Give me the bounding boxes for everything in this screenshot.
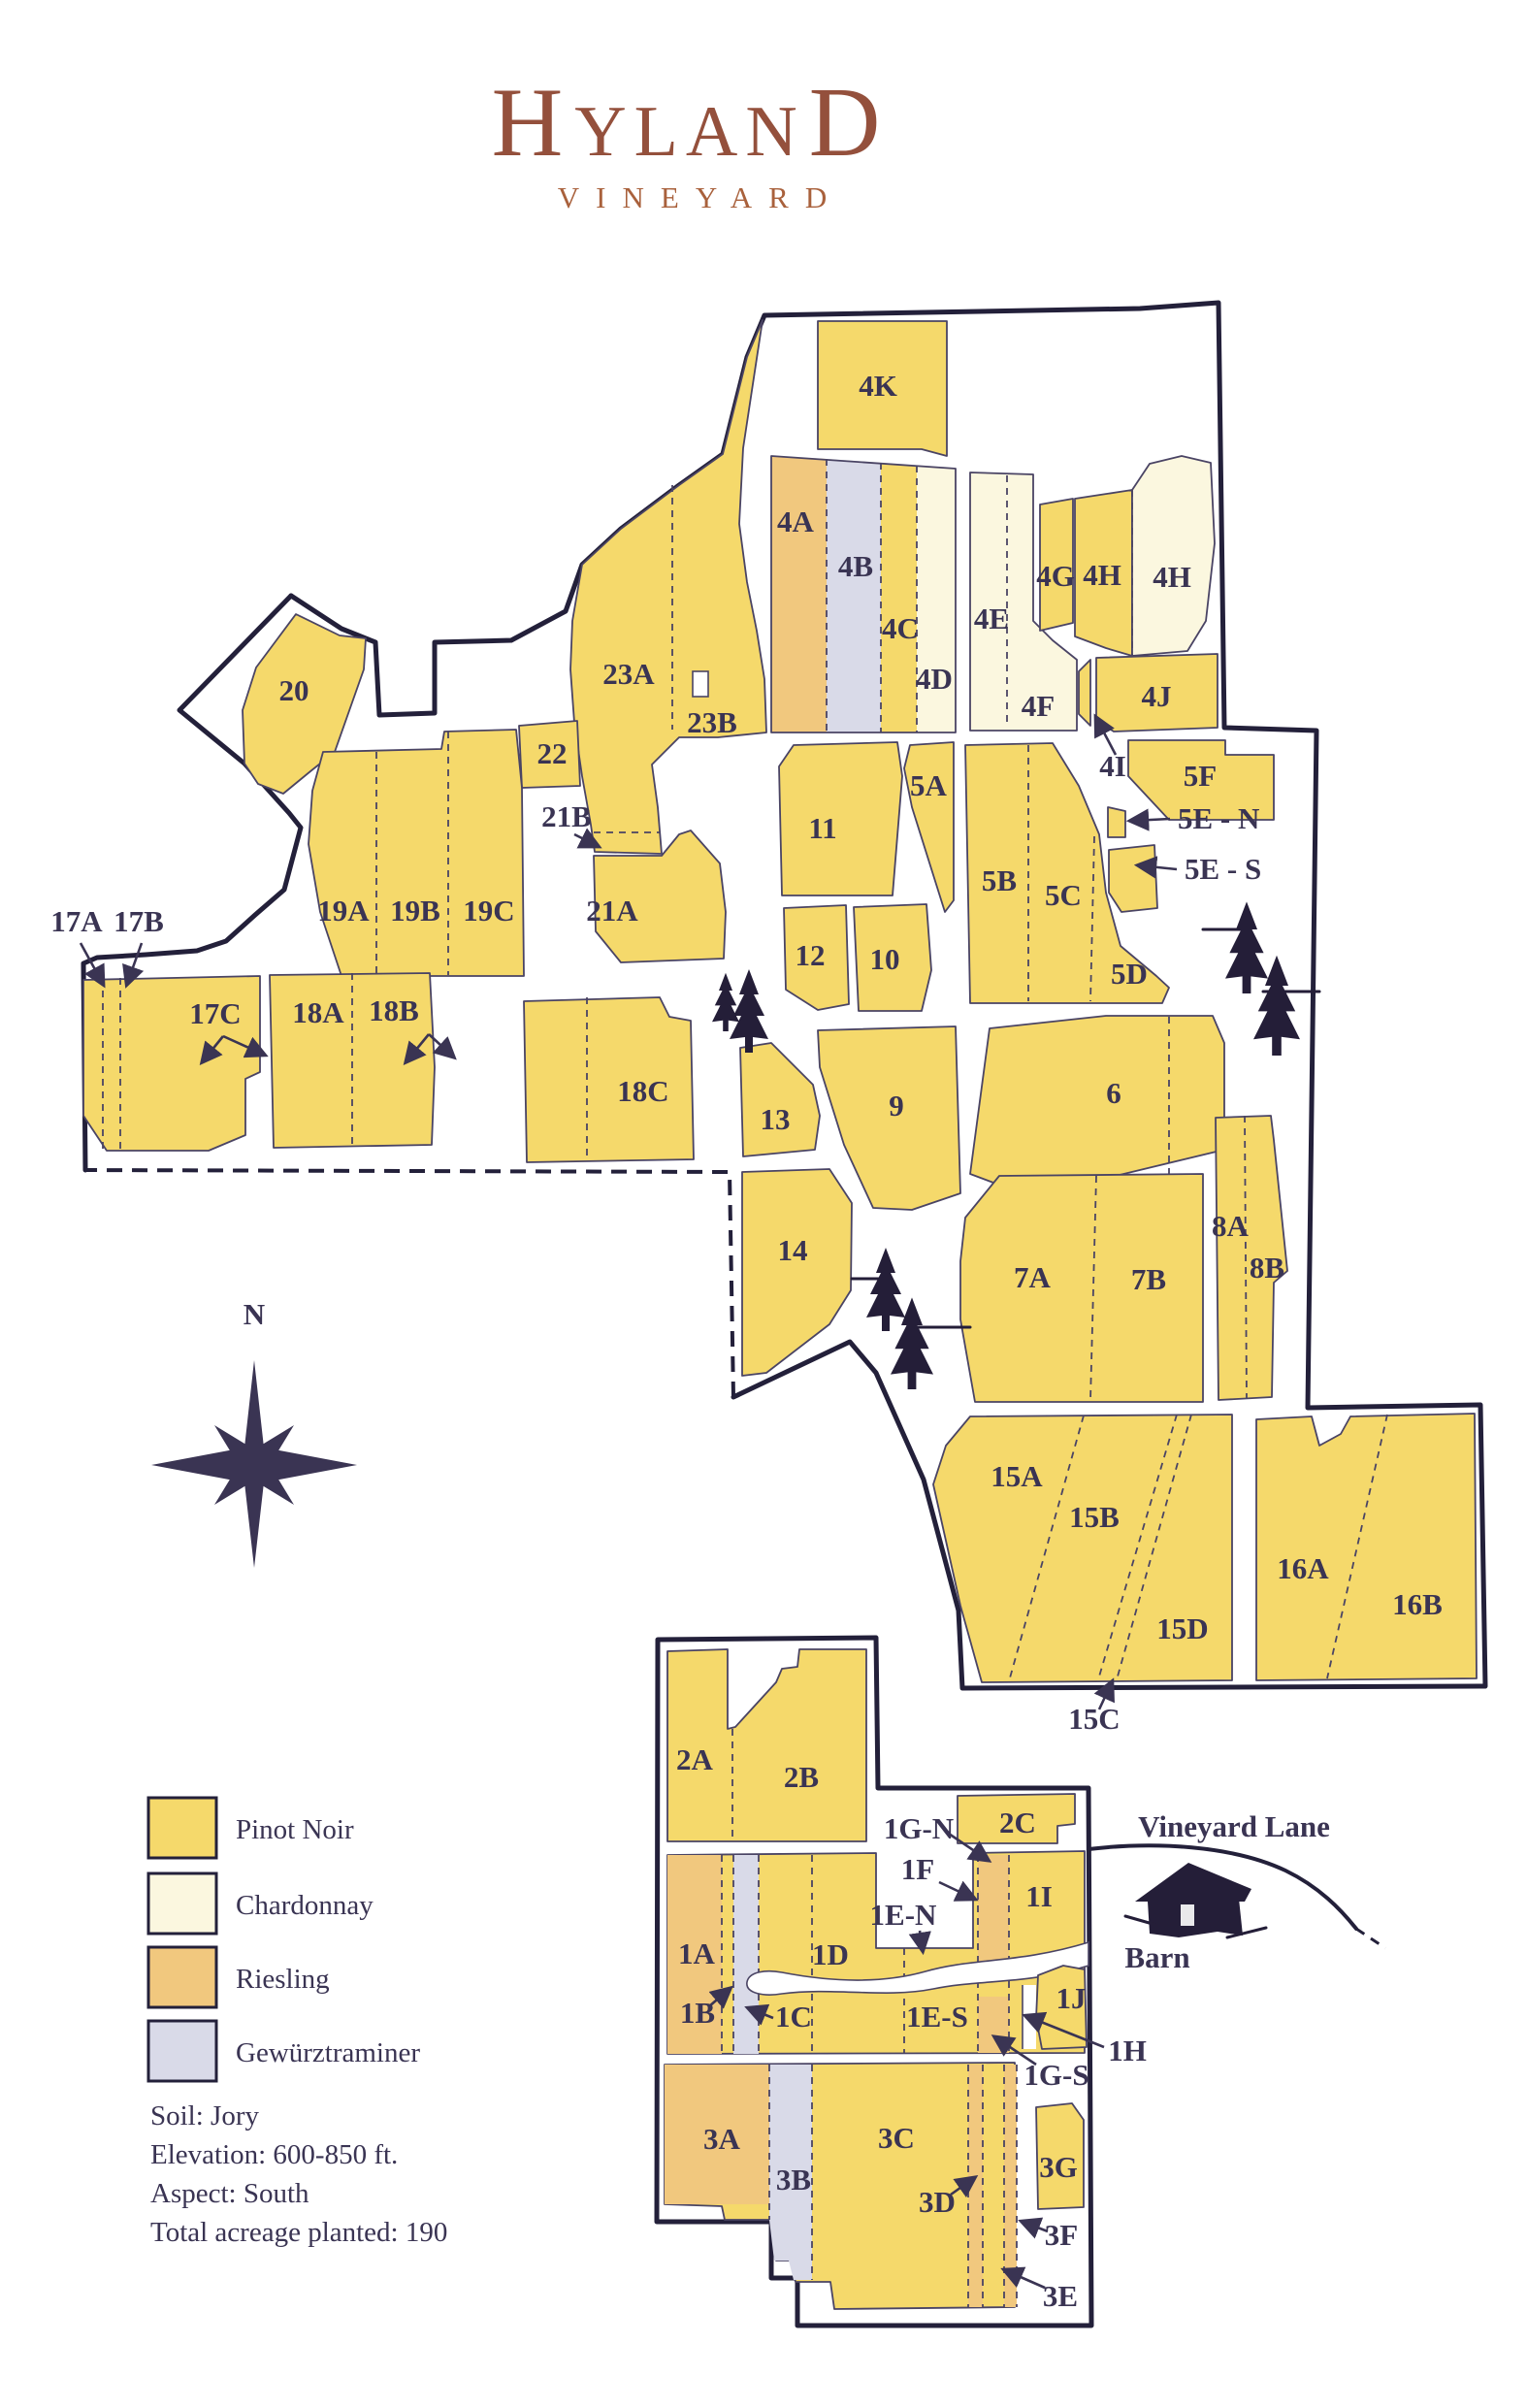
block-label-4H-east: 4H xyxy=(1153,560,1191,594)
tree-icon xyxy=(866,1248,905,1331)
block-label-7B: 7B xyxy=(1131,1262,1166,1296)
block-label-5D: 5D xyxy=(1111,957,1148,991)
block-1C xyxy=(733,1855,759,2054)
block-label-3E: 3E xyxy=(1043,2279,1078,2313)
block-label-4H-west: 4H xyxy=(1083,558,1121,592)
block-label-1J: 1J xyxy=(1056,1981,1087,2015)
block-label-5F: 5F xyxy=(1184,759,1217,793)
block-label-16A: 16A xyxy=(1277,1551,1329,1585)
info-acreage: Total acreage planted: 190 xyxy=(150,2217,447,2248)
block-label-1F: 1F xyxy=(901,1852,934,1886)
block-label-23B: 23B xyxy=(687,705,737,739)
block-label-1I: 1I xyxy=(1025,1879,1053,1913)
block-label-4G: 4G xyxy=(1036,559,1075,593)
block-label-5B: 5B xyxy=(982,863,1017,897)
block-label-4J: 4J xyxy=(1142,679,1172,713)
legend-label-gewurztraminer: Gewürztraminer xyxy=(236,2037,420,2068)
block-13 xyxy=(740,1043,820,1156)
block-label-13: 13 xyxy=(761,1102,791,1136)
block-label-1E-N: 1E-N xyxy=(870,1898,937,1932)
tree-icon xyxy=(730,969,768,1053)
block-label-5E-N: 5E - N xyxy=(1178,801,1259,835)
block-5E-N xyxy=(1108,807,1125,837)
block-4C xyxy=(881,463,917,732)
landmarks xyxy=(1088,1845,1385,1948)
block-3D-strip xyxy=(968,2065,983,2307)
block-label-1E-S: 1E-S xyxy=(906,2000,968,2034)
block-label-11: 11 xyxy=(808,811,836,845)
block-1F-1G-N-strip xyxy=(978,1855,1009,1969)
legend-swatch-chardonnay xyxy=(148,1873,216,1934)
block-label-18B: 18B xyxy=(369,993,419,1027)
block-label-17B: 17B xyxy=(114,904,164,938)
compass-rose-icon xyxy=(151,1360,357,1568)
block-label-8B: 8B xyxy=(1250,1251,1284,1285)
block-label-15A: 15A xyxy=(991,1459,1043,1493)
block-14 xyxy=(742,1169,852,1376)
tree-icon xyxy=(1225,901,1268,993)
legend: Pinot Noir Chardonnay Riesling Gewürztra… xyxy=(148,1798,420,2081)
block-label-16B: 16B xyxy=(1392,1587,1443,1621)
vineyard-info: Soil: Jory Elevation: 600-850 ft. Aspect… xyxy=(150,2100,447,2248)
vineyard-lane-label: Vineyard Lane xyxy=(1138,1809,1330,1843)
page-title: HYLAND xyxy=(492,68,889,178)
block-label-19C: 19C xyxy=(463,894,514,927)
vineyard-blocks-west xyxy=(83,320,766,1162)
barn-icon xyxy=(1125,1863,1266,1937)
block-label-1B: 1B xyxy=(680,1996,715,2030)
block-label-3B: 3B xyxy=(776,2163,811,2196)
legend-label-pinot: Pinot Noir xyxy=(236,1814,354,1845)
vineyard-map: HYLAND VINEYARD xyxy=(0,0,1527,2408)
block-label-21B: 21B xyxy=(541,799,592,833)
block-4A xyxy=(771,456,827,732)
block-label-1G-N: 1G-N xyxy=(884,1811,954,1845)
block-6 xyxy=(970,1016,1224,1188)
block-label-4A: 4A xyxy=(777,504,815,538)
block-label-2B: 2B xyxy=(784,1760,819,1794)
block-label-10: 10 xyxy=(870,942,900,976)
barn-label: Barn xyxy=(1124,1940,1189,1974)
compass-north-label: N xyxy=(244,1297,265,1331)
block-label-1D: 1D xyxy=(812,1937,849,1971)
block-label-7A: 7A xyxy=(1014,1260,1052,1294)
block-label-3G: 3G xyxy=(1039,2150,1078,2184)
block-label-1A: 1A xyxy=(678,1936,716,1970)
legend-swatch-riesling xyxy=(148,1947,216,2007)
block-label-5A: 5A xyxy=(910,768,948,802)
block-label-1G-S: 1G-S xyxy=(1023,2058,1088,2092)
block-label-19A: 19A xyxy=(317,894,370,927)
block-4B xyxy=(827,459,881,732)
block-label-3F: 3F xyxy=(1045,2218,1078,2252)
block-7A-7B xyxy=(960,1174,1203,1402)
block-label-4K: 4K xyxy=(859,369,897,403)
block-4H-east xyxy=(1132,456,1215,656)
block-label-17C: 17C xyxy=(189,996,241,1030)
block-11 xyxy=(779,742,902,895)
vineyard-map-page: { "title": {"first": "H", "middle": "YLA… xyxy=(0,0,1527,2408)
legend-label-chardonnay: Chardonnay xyxy=(236,1890,374,1921)
block-label-4F: 4F xyxy=(1022,689,1055,723)
block-label-9: 9 xyxy=(889,1089,904,1123)
block-label-1C: 1C xyxy=(775,2000,812,2034)
block-label-3A: 3A xyxy=(703,2122,741,2156)
page-subtitle: VINEYARD xyxy=(558,180,843,214)
block-4I xyxy=(1079,660,1090,726)
block-label-17A: 17A xyxy=(50,904,103,938)
block-label-6: 6 xyxy=(1106,1076,1121,1110)
block-label-5E-S: 5E - S xyxy=(1185,852,1261,886)
info-soil: Soil: Jory xyxy=(150,2100,259,2131)
block-label-2C: 2C xyxy=(999,1806,1036,1839)
block-label-1H: 1H xyxy=(1108,2034,1147,2067)
block-19 xyxy=(309,730,524,976)
block-23A-23B xyxy=(570,320,766,854)
block-label-22: 22 xyxy=(537,736,568,770)
block-label-18C: 18C xyxy=(617,1074,668,1108)
legend-swatch-pinot xyxy=(148,1798,216,1858)
block-label-2A: 2A xyxy=(676,1742,714,1776)
block-label-4D: 4D xyxy=(916,662,953,696)
block-label-15D: 15D xyxy=(1156,1611,1208,1645)
info-aspect: Aspect: South xyxy=(150,2178,309,2209)
block-label-12: 12 xyxy=(796,938,826,972)
block-label-18A: 18A xyxy=(292,995,344,1029)
block-label-4I: 4I xyxy=(1099,749,1126,783)
vineyard-lane-road-dashed xyxy=(1356,1929,1385,1948)
block-label-14: 14 xyxy=(778,1233,808,1267)
block-5E-S xyxy=(1109,845,1157,912)
legend-swatch-gewurztraminer xyxy=(148,2021,216,2081)
block-label-20: 20 xyxy=(279,673,309,707)
block-label-4B: 4B xyxy=(838,549,873,583)
small-building-icon xyxy=(693,671,708,697)
block-label-23A: 23A xyxy=(602,657,655,691)
info-elevation: Elevation: 600-850 ft. xyxy=(150,2139,398,2170)
block-label-3D: 3D xyxy=(919,2185,956,2219)
block-label-5C: 5C xyxy=(1045,878,1082,912)
block-label-3C: 3C xyxy=(878,2121,915,2155)
vineyard-blocks-north xyxy=(740,321,1477,1682)
tree-icon xyxy=(712,973,739,1031)
block-label-8A: 8A xyxy=(1212,1209,1250,1243)
block-16 xyxy=(1256,1414,1477,1680)
legend-label-riesling: Riesling xyxy=(236,1964,330,1995)
block-label-4C: 4C xyxy=(882,611,919,645)
block-label-19B: 19B xyxy=(390,894,440,927)
block-label-15B: 15B xyxy=(1069,1500,1120,1534)
block-label-21A: 21A xyxy=(586,894,638,927)
block-label-4E: 4E xyxy=(974,602,1009,635)
block-label-15C: 15C xyxy=(1068,1702,1120,1736)
